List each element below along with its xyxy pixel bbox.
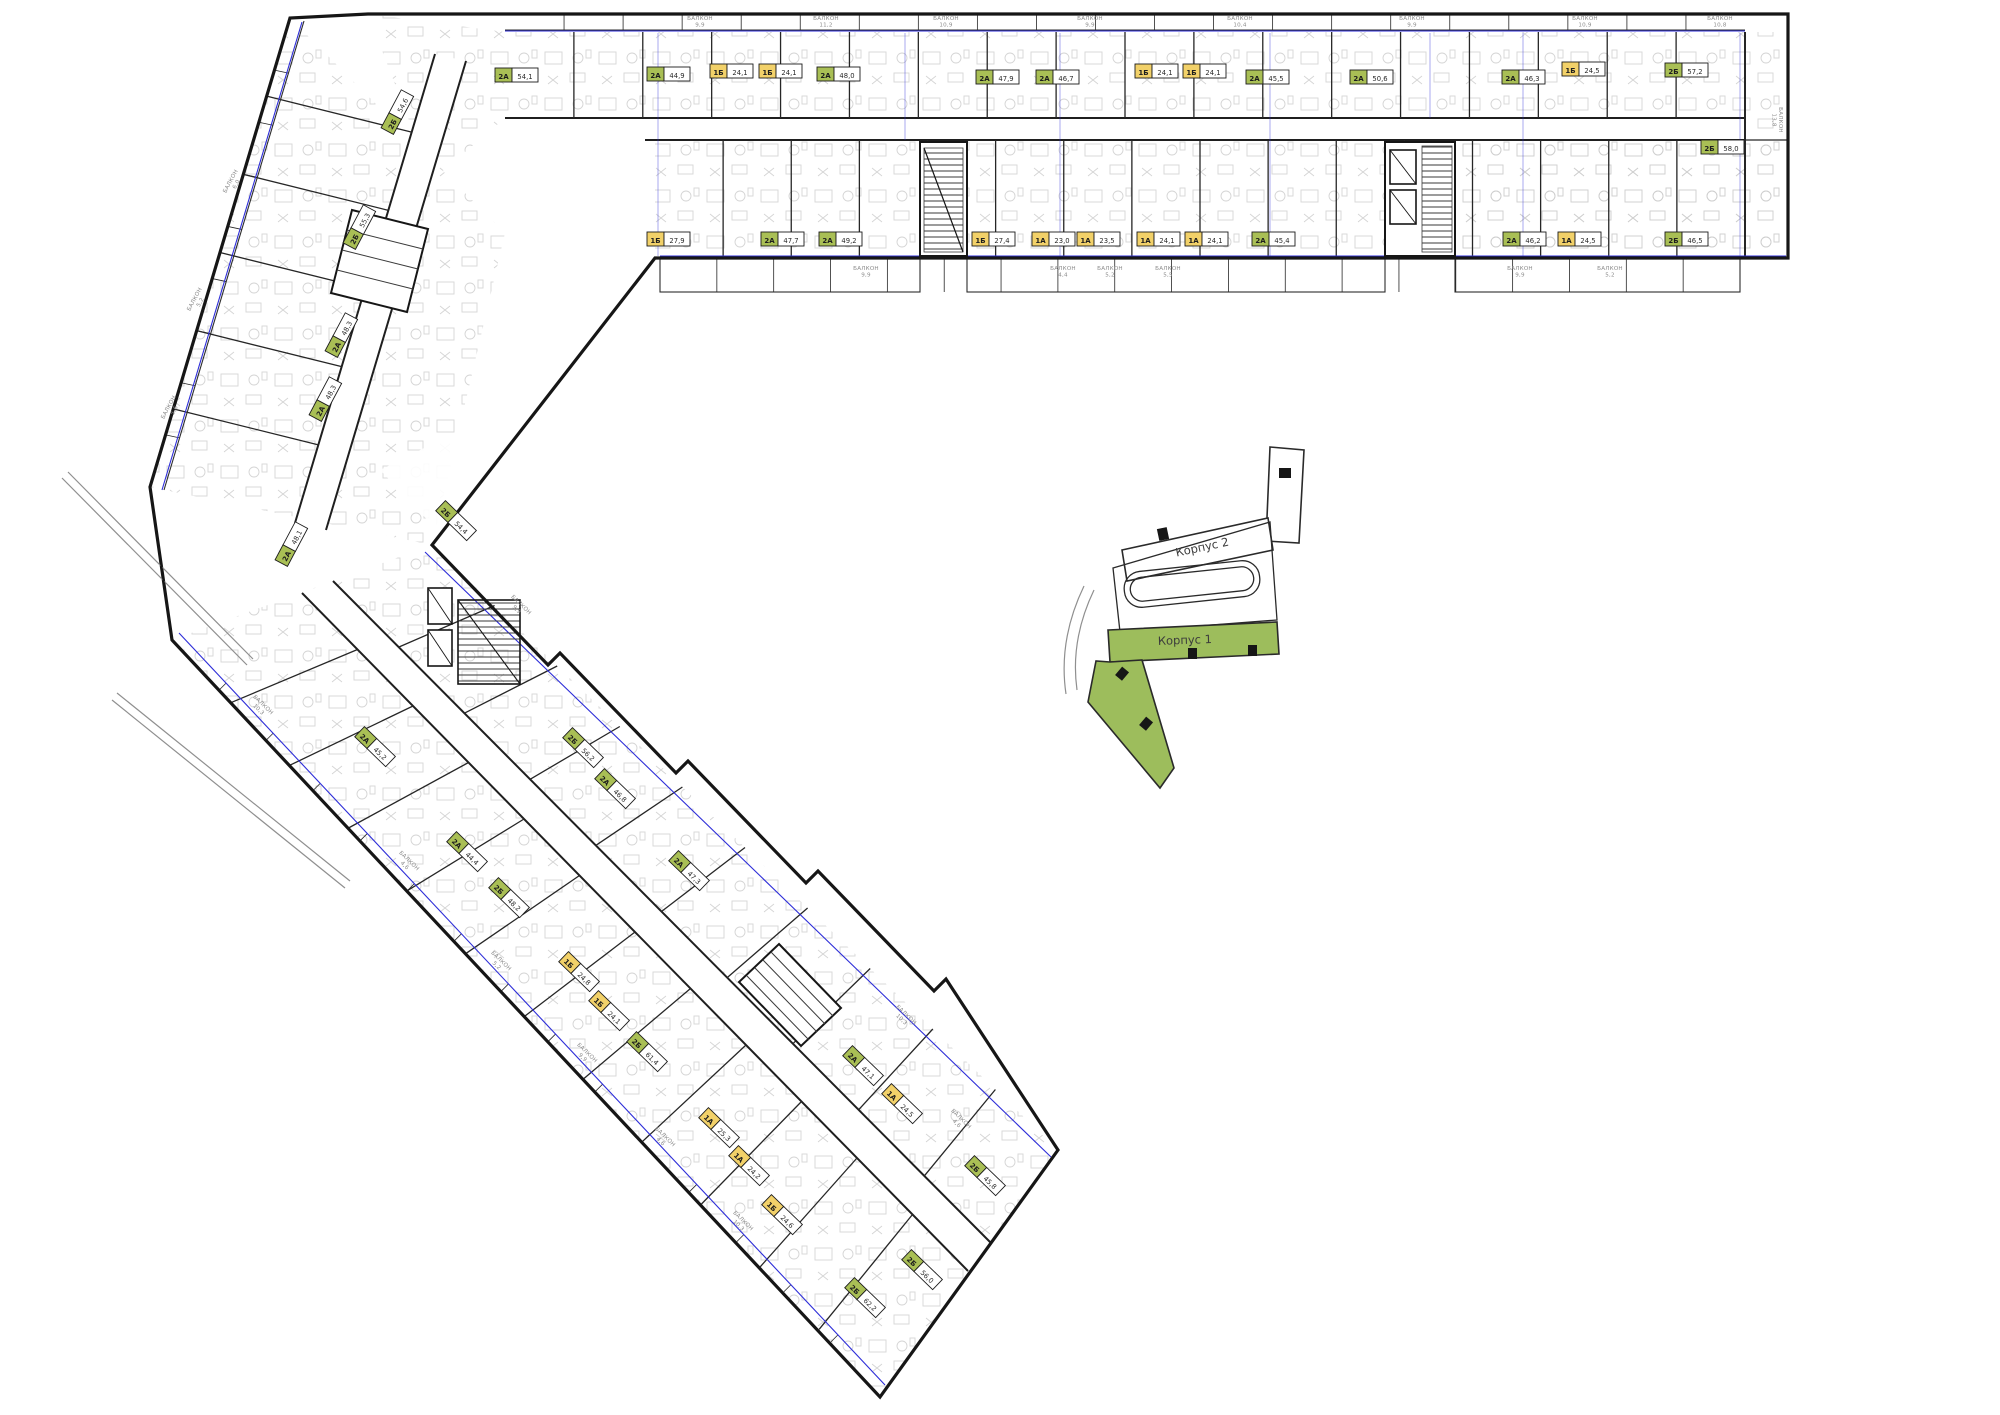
unit-label: 2А54,1 <box>495 68 538 82</box>
unit-label: 2А45,5 <box>1246 70 1289 84</box>
balcony-label: БАЛКОН4,4 <box>1050 266 1076 279</box>
unit-label: 2А46,7 <box>1036 70 1079 84</box>
floor-plan-svg: 2А54,12А44,91Б24,11Б24,12А48,02А47,92А46… <box>0 0 2000 1415</box>
unit-label: 2А47,9 <box>976 70 1019 84</box>
unit-area-text: 46,3 <box>1524 75 1539 83</box>
unit-label: 2А49,2 <box>819 232 862 246</box>
unit-area-text: 48,0 <box>839 72 854 80</box>
unit-label: 1Б27,4 <box>972 232 1015 246</box>
balcony-label: БАЛКОН9,9 <box>1399 16 1425 29</box>
balcony-label: БАЛКОН10,4 <box>1227 16 1253 29</box>
balcony-label: БАЛКОН5,5 <box>1155 266 1181 279</box>
unit-area-text: 47,7 <box>783 237 798 245</box>
unit-label: 1Б24,1 <box>1183 64 1226 78</box>
unit-label: 1Б24,1 <box>710 64 753 78</box>
unit-area-text: 24,5 <box>1584 67 1599 75</box>
unit-type-text: 1А <box>1140 237 1151 245</box>
unit-area-text: 46,7 <box>1058 75 1073 83</box>
unit-type-text: 1Б <box>650 237 660 245</box>
unit-type-text: 1А <box>1561 237 1572 245</box>
stair-core-top-1 <box>920 142 967 256</box>
unit-type-text: 2Б <box>1704 145 1714 153</box>
unit-label: 2А45,4 <box>1252 232 1295 246</box>
unit-label: 1Б24,1 <box>759 64 802 78</box>
unit-area-text: 27,4 <box>994 237 1009 245</box>
unit-area-text: 24,1 <box>1205 69 1220 77</box>
key-plan: Корпус 2 Корпус 1 <box>1064 447 1304 788</box>
unit-type-text: 2А <box>498 73 509 81</box>
unit-type-text: 2А <box>820 72 831 80</box>
unit-label: 2Б57,2 <box>1665 63 1708 77</box>
unit-area-text: 24,5 <box>1580 237 1595 245</box>
keyplan-road <box>1064 586 1094 694</box>
balcony-label: БАЛКОН5,2 <box>1597 266 1623 279</box>
unit-area-text: 50,6 <box>1372 75 1387 83</box>
unit-label: 2А46,2 <box>1503 232 1546 246</box>
unit-label: 1А23,5 <box>1077 232 1120 246</box>
unit-type-text: 2А <box>764 237 775 245</box>
unit-label: 1Б27,9 <box>647 232 690 246</box>
unit-type-text: 2Б <box>1668 68 1678 76</box>
unit-area-text: 45,4 <box>1274 237 1289 245</box>
balcony-label: БАЛКОН10,9 <box>933 16 959 29</box>
unit-area-text: 46,5 <box>1687 237 1702 245</box>
unit-area-text: 58,0 <box>1723 145 1738 153</box>
unit-label: 1А24,1 <box>1185 232 1228 246</box>
unit-type-text: 2А <box>979 75 990 83</box>
unit-type-text: 1А <box>1080 237 1091 245</box>
unit-label: 1Б24,5 <box>1562 62 1605 76</box>
unit-label: 2А47,7 <box>761 232 804 246</box>
unit-area-text: 27,9 <box>669 237 684 245</box>
unit-label: 2Б58,0 <box>1701 140 1744 154</box>
unit-area-text: 23,5 <box>1099 237 1114 245</box>
unit-type-text: 2А <box>1249 75 1260 83</box>
unit-type-text: 1Б <box>975 237 985 245</box>
unit-area-text: 54,1 <box>517 73 532 81</box>
unit-area-text: 44,9 <box>669 72 684 80</box>
unit-type-text: 2А <box>822 237 833 245</box>
unit-area-text: 24,1 <box>1157 69 1172 77</box>
floor-plan-page: 2А54,12А44,91Б24,11Б24,12А48,02А47,92А46… <box>0 0 2000 1415</box>
balcony-label: БАЛКОН10,9 <box>1572 16 1598 29</box>
unit-type-text: 2А <box>1039 75 1050 83</box>
unit-type-text: 1Б <box>762 69 772 77</box>
unit-area-text: 24,1 <box>1207 237 1222 245</box>
keyplan-building-2 <box>1122 447 1304 581</box>
unit-label: 2А48,1 <box>275 522 308 567</box>
unit-type-text: 2А <box>1506 237 1517 245</box>
unit-label: 2Б46,5 <box>1665 232 1708 246</box>
unit-area-text: 24,1 <box>781 69 796 77</box>
unit-type-text: 1Б <box>1565 67 1575 75</box>
balcony-label: БАЛКОН10,8 <box>1707 16 1733 29</box>
unit-type-text: 1А <box>1035 237 1046 245</box>
unit-type-text: 1Б <box>1138 69 1148 77</box>
unit-type-text: 1Б <box>713 69 723 77</box>
balcony-label: БАЛКОН9,9 <box>1077 16 1103 29</box>
unit-label: 1А24,1 <box>1137 232 1180 246</box>
main-building <box>62 14 1788 1397</box>
unit-type-text: 1Б <box>1186 69 1196 77</box>
unit-label: 2А44,9 <box>647 67 690 81</box>
unit-area-text: 45,5 <box>1268 75 1283 83</box>
unit-label: 2А46,3 <box>1502 70 1545 84</box>
unit-area-text: 49,2 <box>841 237 856 245</box>
balcony-label: БАЛКОН9,9 <box>853 266 879 279</box>
unit-label: 1А24,5 <box>1558 232 1601 246</box>
unit-type-text: 1А <box>1188 237 1199 245</box>
balcony-label: БАЛКОН9,9 <box>687 16 713 29</box>
unit-area-text: 24,1 <box>732 69 747 77</box>
unit-area-text: 23,0 <box>1054 237 1069 245</box>
balcony-label: БАЛКОН11,2 <box>813 16 839 29</box>
unit-area-text: 24,1 <box>1159 237 1174 245</box>
unit-label: 2А50,6 <box>1350 70 1393 84</box>
unit-label: 2А48,0 <box>817 67 860 81</box>
balcony-label: БАЛКОН9,9 <box>1507 266 1533 279</box>
unit-label: 1Б24,1 <box>1135 64 1178 78</box>
unit-area-text: 47,9 <box>998 75 1013 83</box>
unit-area-text: 46,2 <box>1525 237 1540 245</box>
unit-type-text: 2А <box>650 72 661 80</box>
elevator-core-top <box>1385 142 1455 256</box>
unit-type-text: 2А <box>1353 75 1364 83</box>
unit-type-text: 2А <box>1505 75 1516 83</box>
unit-type-text: 2Б <box>1668 237 1678 245</box>
balcony-label: БАЛКОН5,2 <box>1097 266 1123 279</box>
keyplan-building-1-label: Корпус 1 <box>1158 632 1213 648</box>
unit-type-text: 2А <box>1255 237 1266 245</box>
unit-area-text: 57,2 <box>1687 68 1702 76</box>
unit-label: 1А23,0 <box>1032 232 1075 246</box>
